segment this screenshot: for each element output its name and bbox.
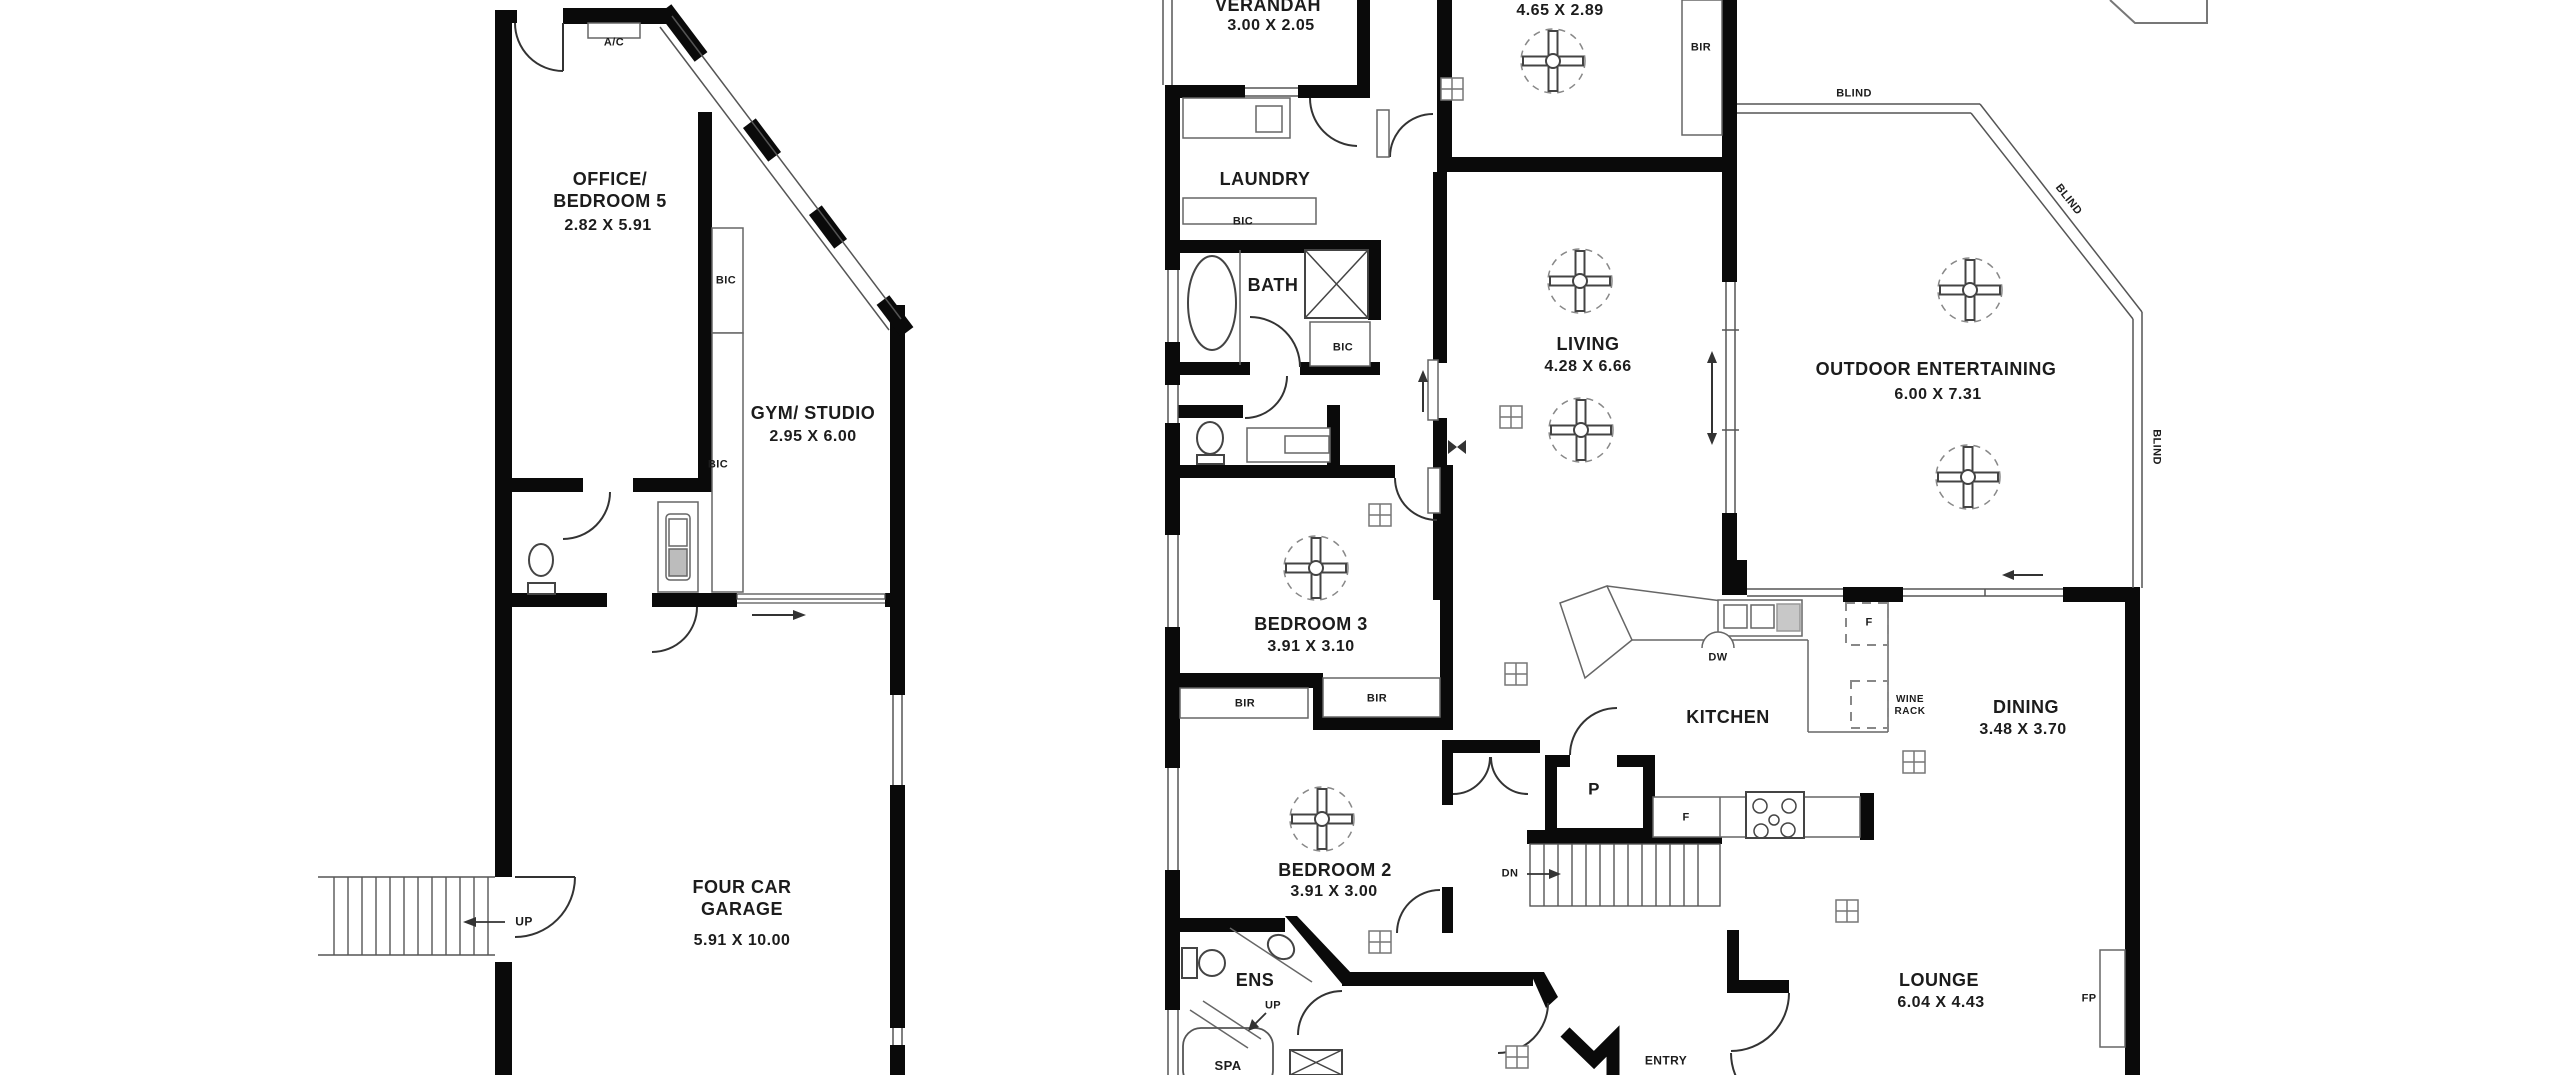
wall-light-icon <box>1448 440 1466 454</box>
room-label-verandah: VERANDAH <box>1215 0 1321 17</box>
floorplan-drawing <box>0 0 2560 1075</box>
room-label-garage: FOUR CAR GARAGE <box>693 877 792 921</box>
room-label-lounge: LOUNGE <box>1899 970 1979 992</box>
pantry-label: P <box>1588 780 1600 801</box>
room-label-spa: SPA <box>1215 1058 1242 1074</box>
room-dims-living: 4.28 X 6.66 <box>1544 357 1631 377</box>
bir-label-bedroom4: BIR <box>1691 41 1711 54</box>
room-dims-outdoor: 6.00 X 7.31 <box>1894 385 1981 405</box>
room-label-dining: DINING <box>1993 697 2059 719</box>
bir-label-bedroom3-right: BIR <box>1367 692 1387 705</box>
ac-label: A/C <box>604 36 624 49</box>
dn-label: DN <box>1502 867 1519 880</box>
fridge-label: F <box>1865 616 1872 629</box>
room-label-ens: ENS <box>1236 970 1275 992</box>
garage-slider-door <box>737 594 885 620</box>
room-label-living: LIVING <box>1556 334 1619 356</box>
room-label-laundry: LAUNDRY <box>1220 169 1311 191</box>
up-label-spa: UP <box>1265 999 1281 1012</box>
garage-up-stairs <box>318 877 505 955</box>
blind-label-top: BLIND <box>1836 87 1872 100</box>
room-dims-bedroom4: 4.65 X 2.89 <box>1516 1 1603 21</box>
floorplan-page: OFFICE/ BEDROOM 5 2.82 X 5.91 GYM/ STUDI… <box>0 0 2560 1075</box>
bic-label-gym: BIC <box>708 458 728 471</box>
bic-label-office: BIC <box>716 274 736 287</box>
room-label-entry: ENTRY <box>1645 1054 1687 1069</box>
wine-rack-label: WINE RACK <box>1895 694 1926 718</box>
fireplace <box>2100 950 2125 1047</box>
room-label-office: OFFICE/ BEDROOM 5 <box>553 169 667 213</box>
bic-label-laundry: BIC <box>1233 215 1253 228</box>
bic-label-bath: BIC <box>1333 341 1353 354</box>
bir-label-bedroom3-left: BIR <box>1235 697 1255 710</box>
fireplace-label: FP <box>2082 992 2097 1005</box>
room-label-bedroom3: BEDROOM 3 <box>1254 614 1368 636</box>
room-dims-garage: 5.91 X 10.00 <box>694 931 791 951</box>
dw-label: DW <box>1708 651 1727 664</box>
dn-stairs <box>1527 844 1720 906</box>
room-label-outdoor: OUTDOOR ENTERTAINING <box>1816 359 2057 381</box>
up-label-garage: UP <box>515 915 532 930</box>
room-dims-office: 2.82 X 5.91 <box>564 216 651 236</box>
room-dims-bedroom2: 3.91 X 3.00 <box>1290 882 1377 902</box>
room-dims-dining: 3.48 X 3.70 <box>1979 720 2066 740</box>
laundry-fixtures <box>1183 98 1316 224</box>
room-label-bath: BATH <box>1248 275 1299 297</box>
fridge-label-bench: F <box>1682 811 1689 824</box>
room-dims-gym: 2.95 X 6.00 <box>769 427 856 447</box>
room-dims-lounge: 6.04 X 4.43 <box>1897 993 1984 1013</box>
blind-label-right: BLIND <box>2149 429 2162 465</box>
room-dims-verandah: 3.00 X 2.05 <box>1227 16 1314 36</box>
room-label-bedroom2: BEDROOM 2 <box>1278 860 1392 882</box>
entry-porch-zigzag-wall <box>1565 1032 1613 1075</box>
room-label-kitchen: KITCHEN <box>1686 707 1770 729</box>
room-label-gym: GYM/ STUDIO <box>751 403 876 425</box>
room-dims-bedroom3: 3.91 X 3.10 <box>1267 637 1354 657</box>
blind-boundary <box>1737 104 2142 588</box>
neighbour-structure-outline <box>2110 0 2207 23</box>
